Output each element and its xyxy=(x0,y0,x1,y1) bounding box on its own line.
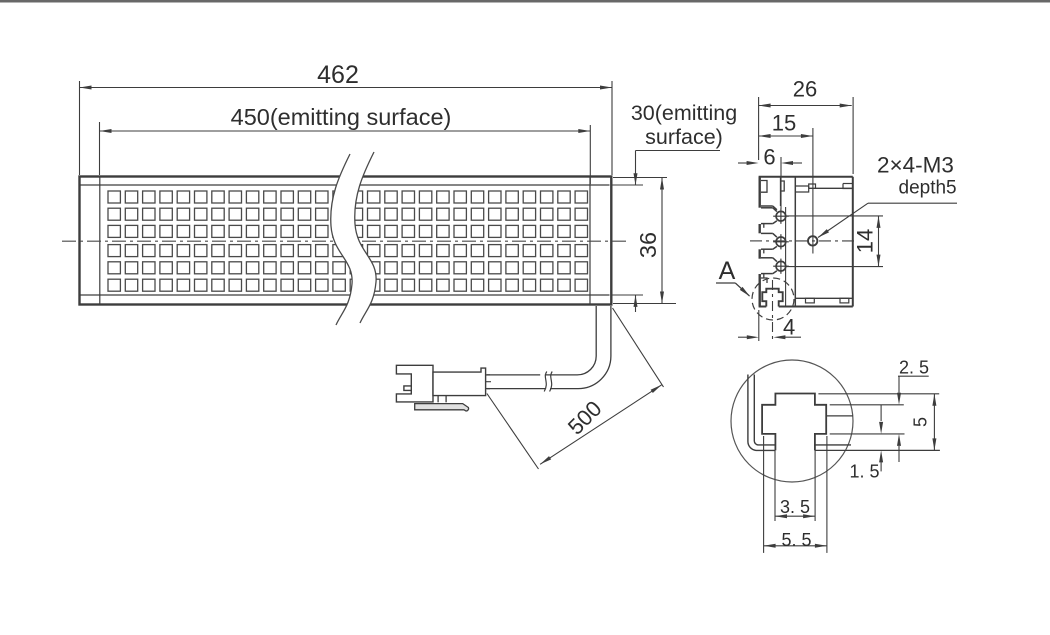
svg-text:6: 6 xyxy=(763,145,775,170)
svg-text:1. 5: 1. 5 xyxy=(849,462,879,482)
svg-text:A: A xyxy=(719,257,736,285)
svg-text:500: 500 xyxy=(563,396,607,440)
svg-text:450(emitting surface): 450(emitting surface) xyxy=(231,104,452,130)
svg-text:26: 26 xyxy=(793,77,817,102)
svg-text:4: 4 xyxy=(783,315,795,340)
svg-text:5. 5: 5. 5 xyxy=(781,530,811,550)
svg-text:5: 5 xyxy=(911,417,931,427)
svg-text:14: 14 xyxy=(853,229,878,253)
svg-text:462: 462 xyxy=(317,61,359,89)
svg-text:3. 5: 3. 5 xyxy=(780,497,810,517)
svg-text:depth5: depth5 xyxy=(899,178,957,199)
svg-text:15: 15 xyxy=(772,111,796,136)
svg-text:surface): surface) xyxy=(645,125,723,149)
svg-text:30(emitting: 30(emitting xyxy=(631,101,737,125)
svg-text:2. 5: 2. 5 xyxy=(899,358,929,378)
svg-text:36: 36 xyxy=(635,232,661,258)
svg-text:2×4-M3: 2×4-M3 xyxy=(877,153,954,178)
